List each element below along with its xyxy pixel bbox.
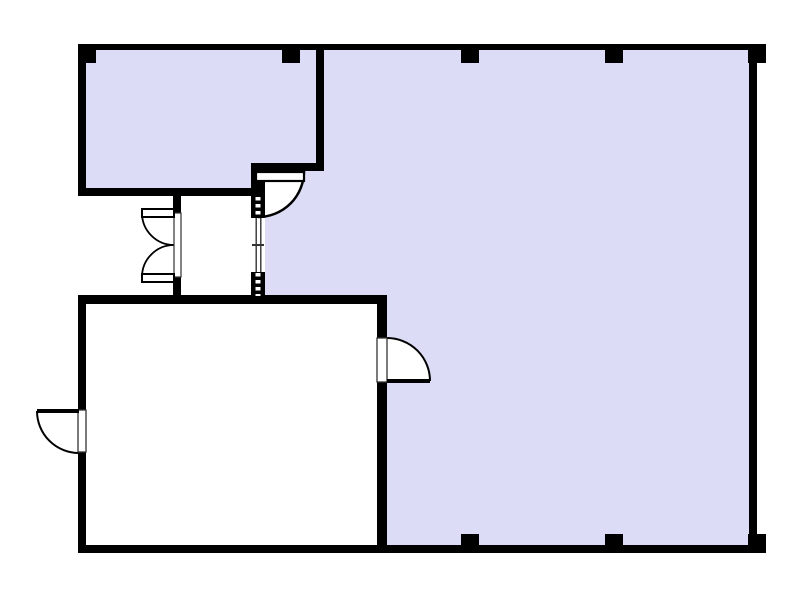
floor-plan-canvas [0,0,800,600]
column-post-bottom-a [461,534,479,553]
column-post-top-b [461,44,479,63]
wall-outer-bottom [78,545,766,553]
wall-notch-horizontal [251,163,324,171]
door-open-lines-layer [37,379,430,413]
door-leaf-vestibule-lower [142,274,174,282]
door-open-line-lower-room [387,379,430,383]
wall-outer-left-lower-b [78,452,86,553]
door-opening-lower-room [377,338,387,382]
column-post-top-c [605,44,623,63]
wall-upper-room-bottom [78,188,265,196]
wall-lower-room-top [78,295,387,304]
column-post-top-right [748,44,766,63]
wall-outer-top [78,44,766,50]
wall-outer-right [749,44,757,553]
column-post-bottom-right [748,534,766,553]
wall-outer-left-upper [78,44,86,196]
wall-lower-room-right-a [377,295,387,338]
door-leaf-top-middle [256,172,304,181]
column-post-top-left [78,44,96,63]
door-leaf-vestibule-upper [142,209,174,217]
door-open-line-exterior-left [37,409,79,413]
wall-outer-left-lower-a [78,295,86,410]
floor-plan [0,0,800,600]
column-post-bottom-b [605,534,623,553]
wall-upper-room-right [316,44,324,171]
wall-lower-room-right-b [377,382,387,553]
door-closed-leaves-vestibule [174,213,181,277]
door-opening-exterior-left [78,410,86,452]
column-post-top-a [282,44,300,63]
